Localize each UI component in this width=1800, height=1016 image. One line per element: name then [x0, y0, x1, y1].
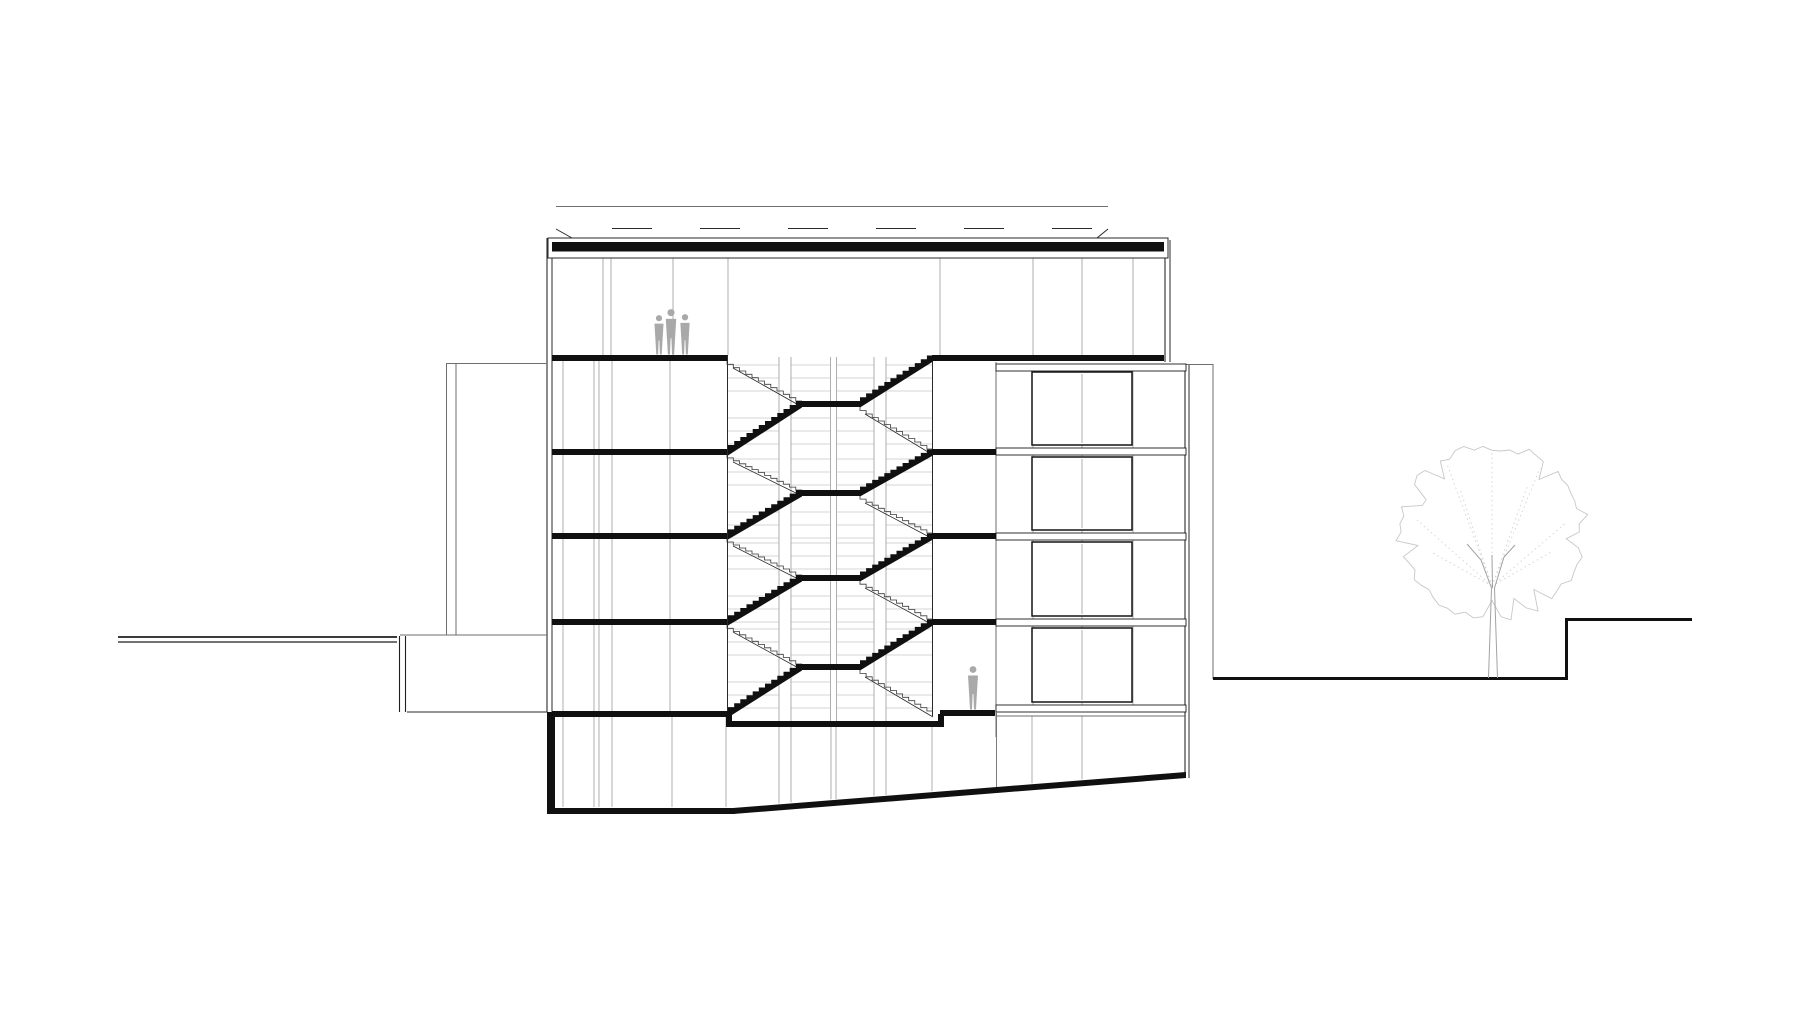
stairwell-column	[874, 357, 886, 721]
thin-stair-stringer	[733, 546, 802, 581]
roof-canopy-diagonal-right	[1097, 229, 1108, 238]
black-stair-flight-upper	[860, 620, 933, 671]
stair-mid-landing	[802, 490, 860, 496]
stair-mid-landing	[802, 664, 860, 670]
stair-mid-landing	[802, 401, 860, 407]
landing-ground	[940, 710, 995, 716]
thin-stair-stringer	[733, 632, 802, 670]
figure-head	[682, 314, 688, 320]
slab3-left	[552, 533, 727, 539]
tree-trunk	[1492, 555, 1493, 588]
tree-branch-dotted	[1492, 551, 1553, 586]
figure-body	[968, 676, 978, 710]
tree-branch-dotted	[1492, 487, 1527, 586]
wing-band-3	[996, 533, 1186, 540]
stair-mid-landing	[802, 575, 860, 581]
figure-person-3	[680, 314, 689, 354]
wing-band-4	[996, 619, 1186, 626]
right-wing	[996, 364, 1186, 787]
slab4-right	[932, 619, 996, 625]
figure-head	[667, 309, 674, 316]
slab2-left	[552, 449, 727, 455]
tree-branch-dotted	[1492, 468, 1540, 586]
figure-body	[680, 323, 689, 355]
figure-body	[654, 324, 663, 355]
thin-stair-flight	[860, 670, 933, 711]
tree-branch-dotted	[1447, 464, 1492, 586]
figure-person-4	[968, 666, 978, 709]
thin-stair-flight	[860, 407, 933, 449]
slab2-right	[932, 449, 996, 455]
slab3-right	[932, 533, 996, 539]
thin-stair-flight	[860, 496, 933, 533]
thin-stair-stringer	[733, 462, 802, 496]
tree-trunk	[1495, 588, 1498, 678]
tree-trunk	[1495, 545, 1516, 588]
thin-stair-stringer	[733, 368, 802, 407]
thin-stair-flight	[860, 581, 933, 619]
slab4-left	[552, 619, 727, 625]
basement-floor	[547, 808, 735, 814]
figure-person-1	[654, 315, 663, 354]
figure-body	[666, 319, 676, 355]
tree	[1396, 446, 1588, 678]
wing-band-2	[996, 448, 1186, 455]
architectural-section-stage	[0, 0, 1800, 1016]
tree-trunk	[1489, 588, 1492, 678]
figure-head	[970, 666, 977, 673]
figure-person-2	[666, 309, 676, 354]
wing-band-roof	[996, 364, 1186, 371]
black-stair-flight-upper	[860, 356, 933, 408]
black-stair-flight-upper	[860, 534, 933, 582]
black-stair-flight-upper	[860, 450, 933, 497]
wing-band-5	[996, 705, 1186, 712]
slab5-left	[552, 711, 732, 717]
background-stairs	[727, 361, 933, 717]
slab1-right	[932, 355, 1164, 361]
basement-ramp-slab	[733, 772, 1186, 814]
section-drawing	[0, 0, 1800, 1016]
pit-floor	[726, 721, 944, 727]
figure-head	[656, 315, 662, 321]
roof-slab-black	[552, 242, 1164, 252]
tree-branch-dotted	[1417, 520, 1492, 586]
tree-branch-dotted	[1460, 489, 1492, 586]
slab1-left	[552, 355, 727, 361]
roof-canopy-diagonal-left	[556, 229, 572, 238]
basement-wall-left	[547, 712, 555, 814]
figures-group	[654, 309, 978, 709]
